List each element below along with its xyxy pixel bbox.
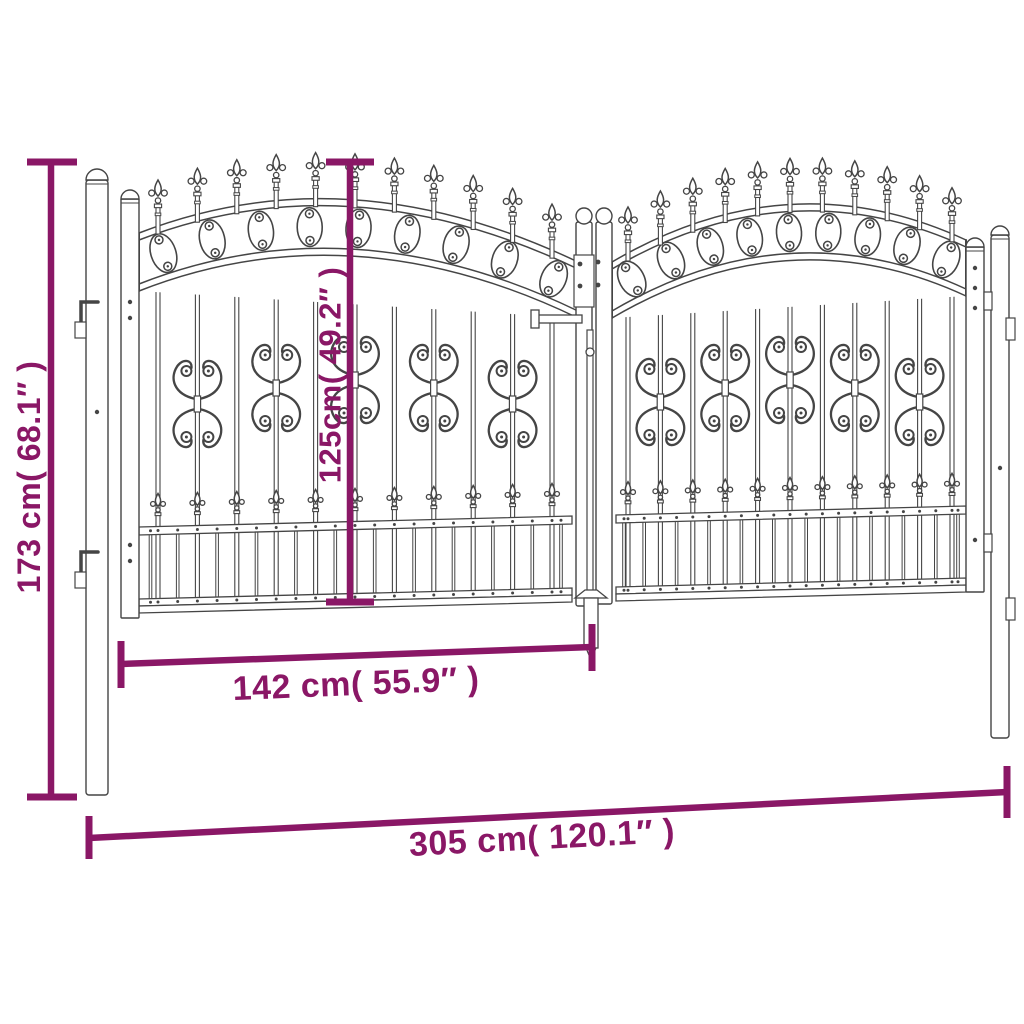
fence-gate-dimension-diagram: 173 cm( 68.1″ ) 125cm( 49.2″ ) 142 cm( 5…: [0, 0, 1024, 1024]
total-height-label: 173 cm( 68.1″ ): [11, 361, 47, 594]
dimension-total-height: 173 cm( 68.1″ ): [11, 162, 77, 797]
left-gate-leaf: [139, 153, 578, 613]
right-gate-leaf: [612, 158, 966, 601]
leaf-width-label: 142 cm( 55.9″ ): [232, 660, 480, 708]
left-post: [86, 169, 108, 795]
left-gate-stile: [121, 190, 139, 618]
diagram-canvas: 173 cm( 68.1″ ) 125cm( 49.2″ ) 142 cm( 5…: [0, 0, 1024, 1024]
dimension-leaf-width: 142 cm( 55.9″ ): [121, 624, 592, 708]
gate-illustration: [75, 153, 1015, 795]
right-post: [991, 226, 1015, 738]
dimension-total-width: 305 cm( 120.1″ ): [89, 766, 1007, 864]
inner-height-label: 125cm( 49.2″ ): [313, 267, 348, 484]
right-gate-stile: [966, 238, 984, 592]
